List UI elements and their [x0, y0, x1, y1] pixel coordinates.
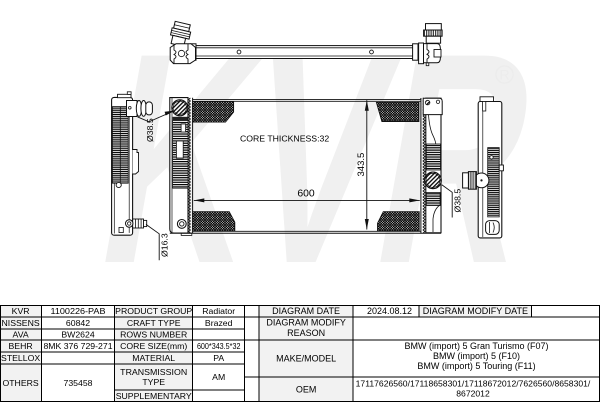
svg-text:OEM: OEM	[296, 385, 317, 395]
svg-text:2024.08.12: 2024.08.12	[367, 306, 412, 316]
svg-text:KVR: KVR	[12, 306, 30, 316]
svg-text:BW2624: BW2624	[61, 330, 94, 340]
svg-text:Ø38.5: Ø38.5	[145, 118, 155, 142]
svg-text:STELLOX: STELLOX	[1, 353, 40, 363]
svg-text:DIAGRAM MODIFY: DIAGRAM MODIFY	[266, 318, 346, 328]
svg-text:343.5: 343.5	[356, 153, 367, 177]
svg-text:MAKE/MODEL: MAKE/MODEL	[276, 353, 336, 363]
svg-text:MATERIAL: MATERIAL	[132, 353, 175, 363]
svg-text:AVA: AVA	[13, 330, 29, 340]
svg-text:REASON: REASON	[287, 328, 325, 338]
svg-text:BEHR: BEHR	[9, 341, 33, 351]
svg-text:8672012: 8672012	[456, 388, 490, 398]
svg-text:AM: AM	[212, 372, 225, 382]
svg-text:NISSENS: NISSENS	[2, 318, 40, 328]
svg-text:BMW (import) 5 (F10): BMW (import) 5 (F10)	[433, 351, 520, 361]
svg-text:BMW (import) 5 Touring (F11): BMW (import) 5 Touring (F11)	[417, 361, 535, 371]
svg-text:PRODUCT GROUP: PRODUCT GROUP	[115, 306, 192, 316]
svg-text:8MK 376 729-271: 8MK 376 729-271	[43, 341, 112, 351]
svg-text:1100226-PAB: 1100226-PAB	[51, 306, 106, 316]
svg-text:735458: 735458	[64, 378, 93, 388]
svg-text:60842: 60842	[66, 318, 90, 328]
svg-text:Radiator: Radiator	[202, 306, 235, 316]
svg-text:Ø16.3: Ø16.3	[159, 233, 169, 257]
svg-text:600*343.5*32: 600*343.5*32	[197, 341, 241, 351]
svg-text:R: R	[499, 67, 509, 83]
svg-text:CORE THICKNESS:32: CORE THICKNESS:32	[240, 134, 329, 144]
svg-text:DIAGRAM DATE: DIAGRAM DATE	[272, 306, 340, 316]
svg-text:TYPE: TYPE	[142, 377, 165, 387]
svg-text:PA: PA	[213, 353, 224, 363]
svg-text:DIAGRAM MODIFY DATE: DIAGRAM MODIFY DATE	[423, 306, 528, 316]
svg-text:Brazed: Brazed	[205, 318, 233, 328]
svg-text:SUPPLEMENTARY: SUPPLEMENTARY	[116, 391, 192, 401]
svg-text:ROWS NUMBER: ROWS NUMBER	[120, 330, 187, 340]
svg-text:CORE SIZE(mm): CORE SIZE(mm)	[120, 341, 187, 351]
svg-text:BMW (import) 5 Gran Turismo (F: BMW (import) 5 Gran Turismo (F07)	[404, 341, 548, 351]
svg-text:17117626560/17118658301/171186: 17117626560/17118658301/17118672012/7626…	[356, 379, 591, 389]
svg-text:Ø38.5: Ø38.5	[452, 189, 462, 213]
svg-text:OTHERS: OTHERS	[2, 378, 38, 388]
svg-text:CRAFT TYPE: CRAFT TYPE	[127, 318, 181, 328]
svg-text:TRANSMISSION: TRANSMISSION	[120, 367, 187, 377]
svg-text:600: 600	[297, 189, 315, 200]
